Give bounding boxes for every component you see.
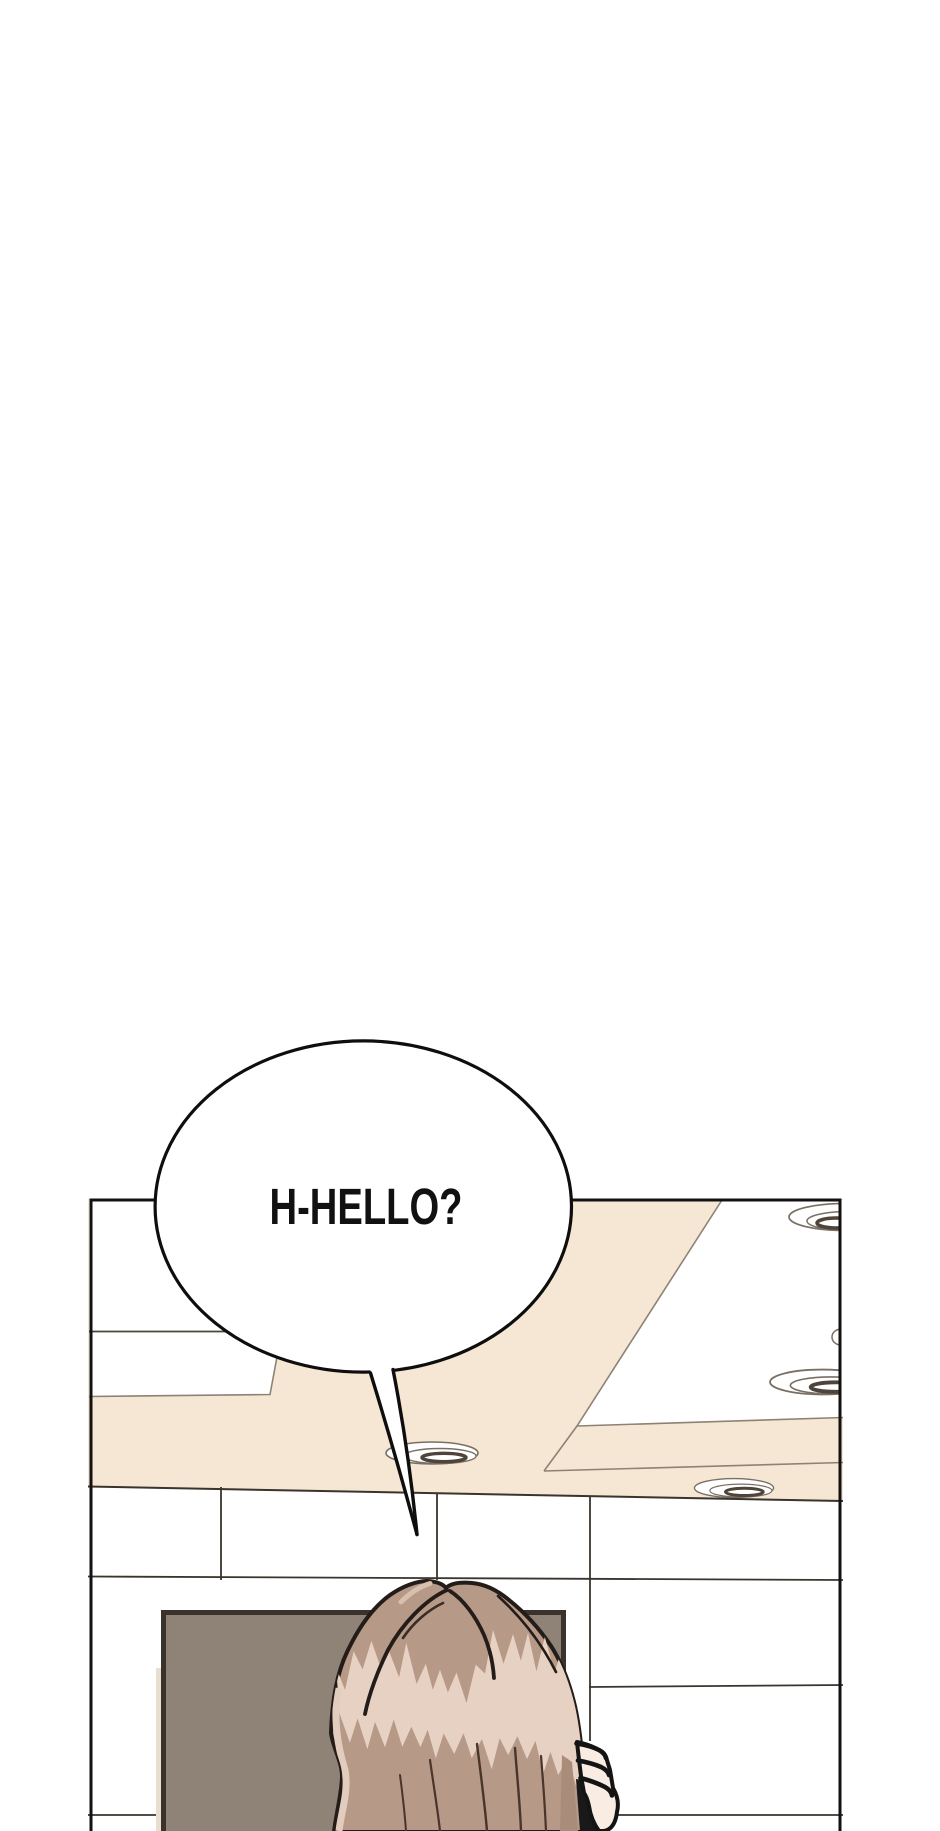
svg-text:H-HELLO?: H-HELLO? xyxy=(270,1178,463,1235)
